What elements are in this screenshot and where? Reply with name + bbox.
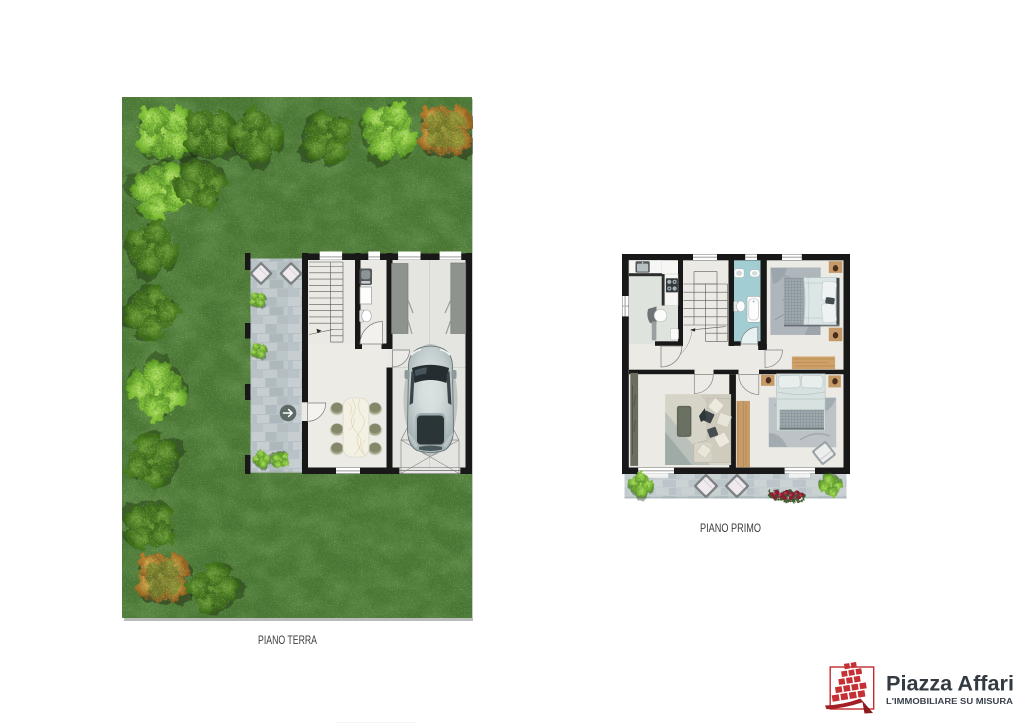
svg-text:PIANO PRIMO: PIANO PRIMO [700, 523, 761, 535]
svg-text:PIANO TERRA: PIANO TERRA [258, 635, 317, 647]
svg-text:L'IMMOBILIARE SU MISURA: L'IMMOBILIARE SU MISURA [886, 696, 1013, 706]
svg-text:Piazza Affari: Piazza Affari [886, 672, 1014, 696]
